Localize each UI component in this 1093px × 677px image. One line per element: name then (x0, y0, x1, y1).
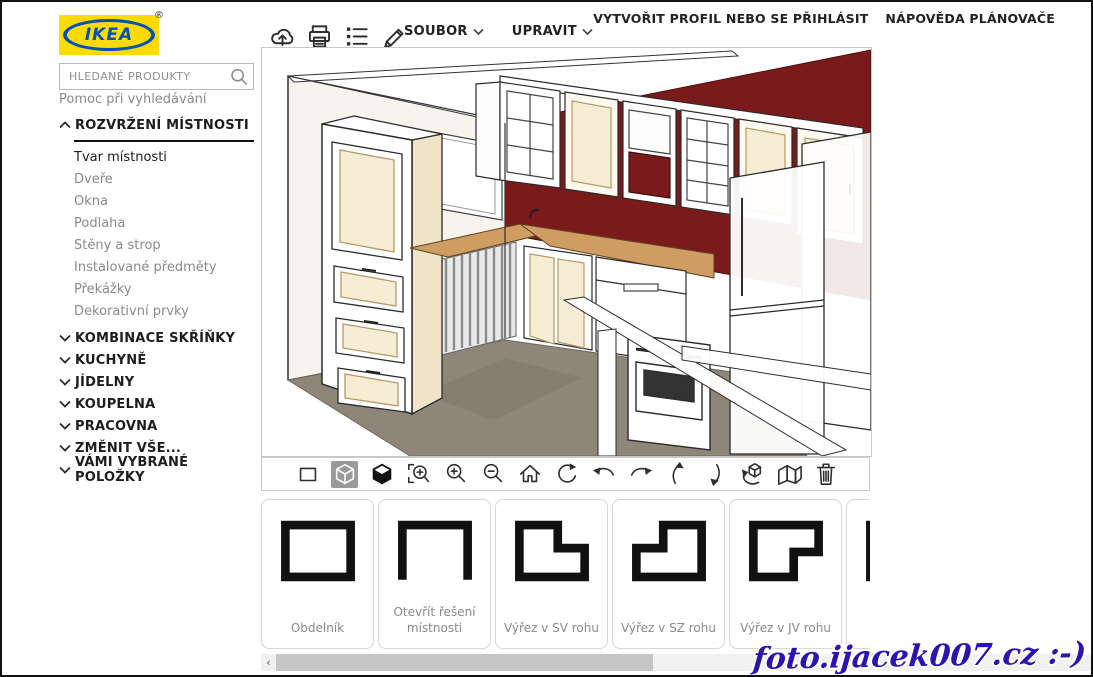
sidebar-item-okna[interactable]: Okna (74, 191, 257, 213)
zoom-in-icon (443, 461, 469, 487)
room-shape-label: Výřez v SZ rohu (615, 620, 722, 636)
room-shape-card-notch-nw[interactable]: Výřez v SZ rohu (612, 499, 725, 649)
room-shape-label: Výřez v JV rohu (734, 620, 837, 636)
tilt-up-icon (665, 461, 691, 487)
chevron-up-icon (59, 121, 71, 129)
menu-upravit-label: UPRAVIT (512, 24, 577, 39)
shape-strip-scrollbar[interactable]: ‹ (261, 654, 1092, 671)
room-shape-card-rectangle[interactable]: Obdelník (261, 499, 374, 649)
search-icon[interactable] (229, 67, 249, 87)
room-shape-card-open-solution[interactable]: Otevřít řešení místnosti (378, 499, 491, 649)
section-koupelna[interactable]: KOUPELNA (59, 393, 257, 415)
3d-solid-view-button[interactable] (368, 461, 395, 488)
sidebar-item-tvar-mistnosti[interactable]: Tvar místnosti (74, 147, 257, 169)
rotate-right-button[interactable] (627, 461, 654, 488)
chevron-down-icon (59, 378, 71, 386)
print-button[interactable] (305, 22, 333, 50)
ikea-logo-text: IKEA (85, 27, 133, 44)
section-label: JÍDELNY (75, 375, 134, 390)
publish-button[interactable] (268, 22, 296, 50)
chevron-down-icon (473, 28, 484, 36)
sidebar-item-steny-a-strop[interactable]: Stěny a strop (74, 235, 257, 257)
sidebar-item-prekazky[interactable]: Překážky (74, 279, 257, 301)
room-shape-notch-se-icon (738, 512, 834, 590)
item-list-button[interactable] (342, 22, 370, 50)
ikea-logo-oval: IKEA (63, 19, 155, 51)
zoom-selection-button[interactable] (405, 461, 432, 488)
rotate-object-icon (739, 461, 765, 487)
section-label: KOMBINACE SKŘÍŇKY (75, 331, 235, 346)
orbit-view-icon (554, 461, 580, 487)
section-rozvrzeni-mistnosti[interactable]: ROZVRŽENÍ MÍSTNOSTI (59, 114, 257, 136)
rotate-left-icon (591, 461, 617, 487)
planner-help-link[interactable]: NÁPOVĚDA PLÁNOVAČE (885, 11, 1055, 26)
room-layout-items: Tvar místnosti Dveře Okna Podlaha Stěny … (74, 147, 257, 323)
orbit-view-button[interactable] (553, 461, 580, 488)
2d-view-button[interactable] (294, 461, 321, 488)
room-shape-notch-nw-icon (621, 512, 717, 590)
room-shape-open-bottom-icon (387, 512, 483, 590)
room-shape-rectangle-icon (270, 512, 366, 590)
rotate-object-button[interactable] (738, 461, 765, 488)
tilt-down-icon (702, 461, 728, 487)
home-view-icon (517, 461, 543, 487)
room-shape-label: Obdelník (285, 620, 350, 636)
zoom-selection-icon (406, 461, 432, 487)
kitchen-3d-viewport[interactable] (261, 47, 872, 457)
chevron-down-icon (582, 28, 593, 36)
room-shape-clipped-icon (855, 512, 871, 590)
scrollbar-thumb[interactable] (276, 654, 653, 671)
room-shape-card-notch-ne[interactable]: Výřez v SV rohu (495, 499, 608, 649)
2d-view-icon (295, 461, 321, 487)
header-quick-actions (268, 22, 407, 50)
sidebar-item-dvere[interactable]: Dveře (74, 169, 257, 191)
zoom-out-button[interactable] (479, 461, 506, 488)
section-label: KOUPELNA (75, 397, 155, 412)
delete-button[interactable] (812, 461, 839, 488)
item-list-icon (343, 23, 370, 50)
tilt-up-button[interactable] (664, 461, 691, 488)
menu-soubor[interactable]: SOUBOR (404, 24, 484, 39)
create-profile-login-link[interactable]: VYTVOŘIT PROFIL NEBO SE PŘIHLÁSIT (593, 11, 868, 26)
room-shape-notch-ne-icon (504, 512, 600, 590)
3d-solid-view-icon (369, 461, 395, 487)
zoom-out-icon (480, 461, 506, 487)
section-kombinace-skrinky[interactable]: KOMBINACE SKŘÍŇKY (59, 327, 257, 349)
show-walls-icon (776, 461, 802, 487)
search-help-link[interactable]: Pomoc při vyhledávání (59, 92, 207, 107)
sidebar-item-podlaha[interactable]: Podlaha (74, 213, 257, 235)
publish-cloud-icon (269, 23, 296, 50)
menu-bar: SOUBOR UPRAVIT (404, 24, 593, 39)
chevron-down-icon (59, 400, 71, 408)
edit-pencil-button[interactable] (379, 22, 407, 50)
section-label: ZMĚNIT VŠE... (75, 441, 181, 456)
menu-upravit[interactable]: UPRAVIT (512, 24, 593, 39)
product-search-box (59, 63, 254, 90)
account-links: VYTVOŘIT PROFIL NEBO SE PŘIHLÁSIT NÁPOVĚ… (593, 11, 1055, 26)
show-walls-button[interactable] (775, 461, 802, 488)
sidebar-navigation: ROZVRŽENÍ MÍSTNOSTI Tvar místnosti Dveře… (59, 114, 257, 481)
scroll-left-arrow[interactable]: ‹ (261, 654, 276, 671)
tilt-down-button[interactable] (701, 461, 728, 488)
section-label: KUCHYNĚ (75, 353, 146, 368)
room-shape-card-notch-se[interactable]: Výřez v JV rohu (729, 499, 842, 649)
chevron-down-icon (59, 422, 71, 430)
room-shape-label: Otevřít řešení místnosti (379, 604, 490, 636)
print-icon (306, 23, 333, 50)
section-vami-vybrane-polozky[interactable]: VÁMI VYBRANÉ POLOŽKY (59, 459, 257, 481)
room-shape-strip: Obdelník Otevřít řešení místnosti Výřez … (261, 499, 870, 652)
registered-mark: ® (154, 10, 164, 21)
home-view-button[interactable] (516, 461, 543, 488)
section-pracovna[interactable]: PRACOVNA (59, 415, 257, 437)
chevron-down-icon (59, 356, 71, 364)
search-input[interactable] (67, 69, 229, 84)
section-underline (74, 140, 254, 142)
zoom-in-button[interactable] (442, 461, 469, 488)
chevron-down-icon (59, 466, 71, 474)
ikea-logo-inner: IKEA (67, 22, 151, 48)
room-shape-card-clipped[interactable]: Vý (846, 499, 870, 649)
menu-soubor-label: SOUBOR (404, 24, 468, 39)
rotate-right-icon (628, 461, 654, 487)
kitchen-3d-render (262, 48, 871, 456)
trash-icon (813, 461, 839, 487)
section-label: PRACOVNA (75, 419, 157, 434)
rotate-left-button[interactable] (590, 461, 617, 488)
view-toolbar (261, 457, 870, 491)
pencil-edit-icon (380, 23, 407, 50)
chevron-down-icon (59, 334, 71, 342)
tall-cabinet (322, 116, 442, 414)
sidebar-item-instalovane-predmety[interactable]: Instalované předměty (74, 257, 257, 279)
ikea-logo[interactable]: IKEA (59, 15, 159, 55)
sidebar-item-dekorativni-prvky[interactable]: Dekorativní prvky (74, 301, 257, 323)
section-label: ROZVRŽENÍ MÍSTNOSTI (75, 118, 249, 133)
section-label: VÁMI VYBRANÉ POLOŽKY (75, 455, 257, 485)
3d-view-button[interactable] (331, 461, 358, 488)
room-shape-label: Výřez v SV rohu (498, 620, 605, 636)
3d-view-icon (332, 461, 358, 487)
chevron-down-icon (59, 444, 71, 452)
ikea-planner-window: IKEA ® (0, 0, 1093, 677)
section-kuchyne[interactable]: KUCHYNĚ (59, 349, 257, 371)
section-jidelny[interactable]: JÍDELNY (59, 371, 257, 393)
